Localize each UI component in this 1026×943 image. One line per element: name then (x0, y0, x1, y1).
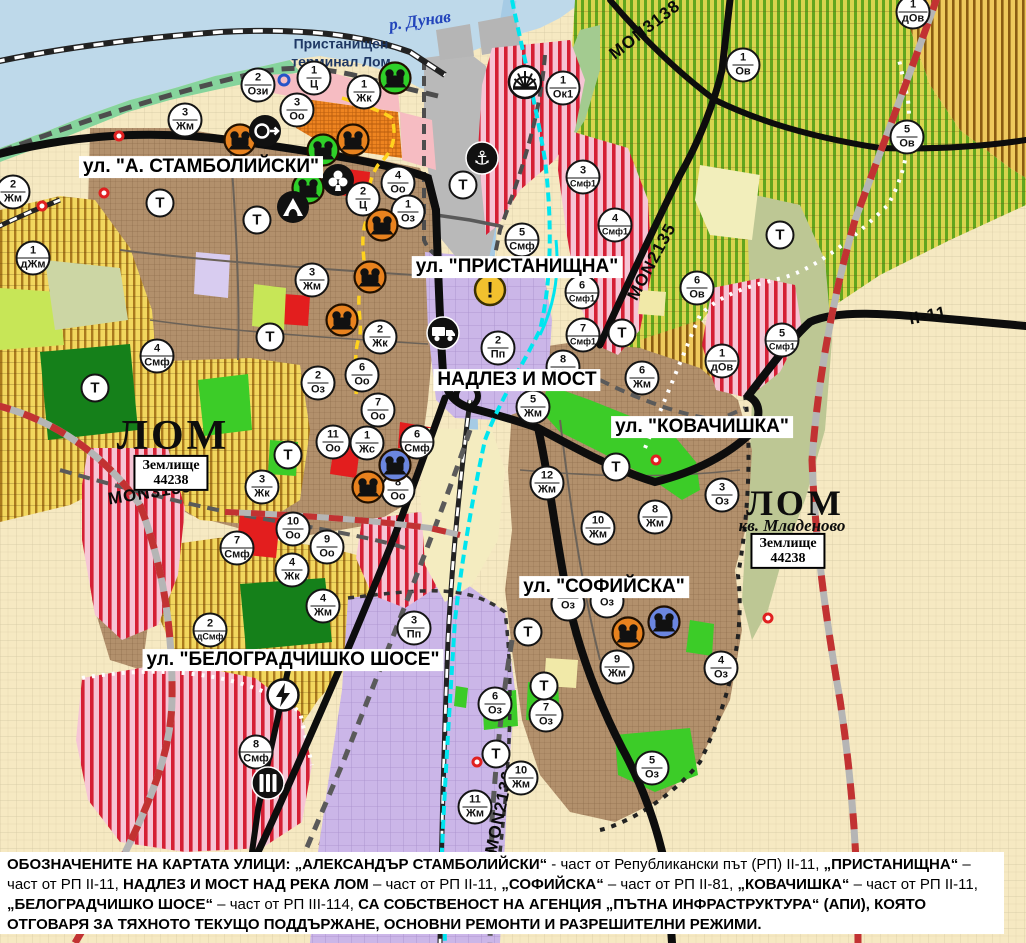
zone-marker-code: Жм (643, 516, 667, 530)
zone-marker-2-Ози: 2Ози (241, 68, 276, 103)
zone-marker-1-Ц: 1Ц (297, 61, 332, 96)
zone-marker-code: дСмф (194, 630, 227, 642)
zone-marker-code: Жм (509, 777, 533, 791)
zone-marker-code: Смф (506, 239, 538, 253)
zone-marker-code: Жм (311, 605, 335, 619)
zone-marker-number: 1 (405, 199, 411, 210)
zone-marker-number: 4 (718, 655, 724, 666)
zone-marker-number: 4 (320, 593, 326, 604)
zone-marker-5-Жм: 5Жм (516, 390, 551, 425)
road-label-mon3138: MON3138 (606, 0, 685, 64)
zone-marker-code: Оо (367, 409, 388, 423)
zone-marker-number: 4 (289, 557, 295, 568)
zone-marker-number: 2 (207, 618, 213, 629)
zone-marker-code: Оз (308, 382, 328, 396)
zone-marker-number: 7 (580, 323, 586, 334)
zone-marker-number: 6 (359, 362, 365, 373)
zone-marker-code: Жк (353, 91, 374, 105)
point-marker (99, 188, 110, 199)
zone-marker-code: Смф (240, 751, 272, 765)
zone-marker-9-Оо: 9Оо (310, 530, 345, 565)
zone-marker-1-дОв: 1дОв (896, 0, 931, 30)
street-label: ул. "КОВАЧИШКА" (611, 416, 793, 438)
station-icon (250, 765, 286, 801)
zone-marker-number: 8 (253, 739, 259, 750)
zone-marker-number: 3 (580, 165, 586, 176)
transport-marker-t: Т (482, 740, 511, 769)
zone-marker-number: 9 (614, 654, 620, 665)
zone-marker-code: дЖм (17, 257, 48, 271)
footer-note: ОБОЗНАЧЕНИТЕ НА КАРТАТА УЛИЦИ: „АЛЕКСАНД… (0, 852, 1004, 934)
zone-marker-number: 1 (364, 430, 370, 441)
zone-marker-7-Смф1: 7Смф1 (566, 318, 601, 353)
zone-marker-3-Жк: 3Жк (245, 470, 280, 505)
zone-marker-6-Оз: 6Оз (478, 687, 513, 722)
zone-marker-2-Оз: 2Оз (301, 366, 336, 401)
zone-marker-number: 1 (30, 245, 36, 256)
port-terminal-line1: Пристанищен (291, 36, 391, 54)
zone-marker-code: Ок1 (550, 87, 576, 101)
zone-marker-2-Пп: 2Пп (481, 331, 516, 366)
zone-marker-code: Оз (642, 767, 662, 781)
zone-marker-code: Жм (521, 406, 545, 420)
zone-marker-5-Ов: 5Ов (890, 120, 925, 155)
svg-text:⚓: ⚓ (473, 148, 490, 170)
zone-marker-9-Жм: 9Жм (600, 650, 635, 685)
zone-marker-code: Ов (686, 287, 707, 301)
zone-marker-code: Жм (630, 377, 654, 391)
zone-marker-12-Жм: 12Жм (530, 466, 565, 501)
transport-marker-t: Т (256, 323, 285, 352)
footer-text-segment: „ПРИСТАНИЩНА“ (824, 856, 959, 873)
zone-marker-number: 6 (694, 275, 700, 286)
zone-marker-8-Жм: 8Жм (638, 500, 673, 535)
street-label: ул. "БЕЛОГРАДЧИШКО ШОСЕ" (143, 649, 444, 671)
club-icon (320, 162, 356, 198)
zone-marker-4-Жк: 4Жк (275, 553, 310, 588)
culture-monument-icon-orange (352, 259, 388, 295)
footer-text-segment: ОБОЗНАЧЕНИТЕ НА КАРТАТА УЛИЦИ: „АЛЕКСАНД… (7, 856, 547, 873)
footer-text-segment: „КОВАЧИШКА“ (737, 876, 849, 893)
anchor-icon: ⚓ (464, 140, 500, 176)
zone-marker-code: Жм (463, 806, 487, 820)
zone-marker-number: 11 (469, 794, 481, 805)
zone-marker-number: 2 (377, 324, 383, 335)
zone-marker-5-Оз: 5Оз (635, 751, 670, 786)
zone-marker-code: Оо (351, 374, 372, 388)
culture-monument-icon-orange (610, 615, 646, 651)
zone-marker-10-Жм: 10Жм (504, 761, 539, 796)
zone-marker-code: Жм (173, 119, 197, 133)
zone-marker-11-Оо: 11Оо (316, 425, 351, 460)
land-plot-box-east: Землище 44238 (750, 533, 825, 569)
zone-marker-number: 4 (612, 213, 618, 224)
point-marker (114, 131, 125, 142)
zone-marker-code: Оз (558, 598, 578, 612)
zone-marker-code: Жк (369, 336, 390, 350)
zone-marker-code: Оз (398, 211, 418, 225)
zone-marker-code: Оо (387, 489, 408, 503)
culture-monument-icon-orange (364, 207, 400, 243)
zone-marker-number: 2 (360, 186, 366, 197)
zone-marker-6-Смф1: 6Смф1 (565, 275, 600, 310)
footer-text-segment: – част от РП II-81, (604, 876, 738, 893)
zone-marker-code: Оо (282, 528, 303, 542)
zone-marker-1-дОв: 1дОв (705, 344, 740, 379)
zone-marker-number: 6 (579, 280, 585, 291)
zone-marker-code: дОв (708, 360, 736, 374)
land-plot-line2: 44238 (142, 473, 199, 488)
zone-marker-1-Ов: 1Ов (726, 48, 761, 83)
zone-marker-1-Ок1: 1Ок1 (546, 71, 581, 106)
zone-marker-code: Ц (307, 77, 321, 91)
land-plot-line1: Землище (759, 536, 816, 551)
zone-marker-code: Оо (316, 546, 337, 560)
zone-marker-code: Смф1 (599, 225, 631, 237)
street-label: ул. "ПРИСТАНИЩНА" (412, 256, 623, 278)
zone-marker-code: Жк (251, 486, 272, 500)
point-marker (37, 201, 48, 212)
zone-marker-7-Оз: 7Оз (529, 698, 564, 733)
road-label-mon2135: MON2135 (623, 220, 680, 304)
point-marker (651, 455, 662, 466)
zone-marker-number: 1 (560, 75, 566, 86)
zone-marker-code: Жм (1, 191, 25, 205)
port-fan-icon (507, 64, 543, 100)
overlay-layer: р. Дунав Пристанищен терминал Лом ЛОМ ЛО… (0, 0, 1026, 943)
zone-marker-6-Ов: 6Ов (680, 271, 715, 306)
zone-marker-4-Смф1: 4Смф1 (598, 208, 633, 243)
zone-marker-number: 5 (904, 124, 910, 135)
zone-marker-number: 3 (294, 97, 300, 108)
zoning-map: р. Дунав Пристанищен терминал Лом ЛОМ ЛО… (0, 0, 1026, 943)
zone-marker-code: Жм (586, 527, 610, 541)
power-icon (265, 677, 301, 713)
footer-text-segment: – част от РП III-114, (213, 896, 358, 913)
zone-marker-number: 8 (560, 354, 566, 365)
zone-marker-code: Пп (404, 627, 425, 641)
zone-marker-code: Жк (281, 569, 302, 583)
land-plot-line2: 44238 (759, 551, 816, 566)
zone-marker-10-Оо: 10Оо (276, 512, 311, 547)
zone-marker-3-Оз: 3Оз (705, 478, 740, 513)
zone-marker-code: Жм (300, 279, 324, 293)
zone-marker-code: Оо (322, 441, 343, 455)
point-marker (472, 757, 483, 768)
zone-marker-number: 3 (411, 615, 417, 626)
ring-marker (278, 74, 291, 87)
zone-marker-code: Жм (535, 482, 559, 496)
zone-marker-3-Смф1: 3Смф1 (566, 160, 601, 195)
zone-marker-number: 7 (543, 702, 549, 713)
zone-marker-number: 10 (592, 515, 604, 526)
zone-marker-code: Оз (536, 714, 556, 728)
zone-marker-number: 9 (324, 534, 330, 545)
zone-marker-4-Жм: 4Жм (306, 589, 341, 624)
zone-marker-5-Смф: 5Смф (505, 223, 540, 258)
zone-marker-6-Оо: 6Оо (345, 358, 380, 393)
zone-marker-code: Ози (245, 84, 272, 98)
zone-marker-code: Оз (712, 494, 732, 508)
tunnel-icon (275, 189, 311, 225)
footer-text-segment: „СОФИЙСКА“ (501, 876, 603, 893)
ring-arrow-icon (247, 113, 283, 149)
street-label: ул. "СОФИЙСКА" (519, 576, 689, 598)
zone-marker-2-Жм: 2Жм (0, 175, 31, 210)
zone-marker-number: 1 (311, 65, 317, 76)
zone-marker-number: 5 (779, 328, 785, 339)
zone-marker-10-Жм: 10Жм (581, 511, 616, 546)
zone-marker-number: 4 (395, 170, 401, 181)
zone-marker-11-Жм: 11Жм (458, 790, 493, 825)
footer-text-segment: НАДЛЕЗ И МОСТ НАД РЕКА ЛОМ (123, 876, 369, 893)
transport-marker-t: Т (514, 618, 543, 647)
zone-marker-number: 1 (740, 52, 746, 63)
zone-marker-number: 6 (639, 365, 645, 376)
zone-marker-number: 1 (361, 79, 367, 90)
zone-marker-5-Смф1: 5Смф1 (765, 323, 800, 358)
culture-monument-icon-green (377, 60, 413, 96)
zone-marker-number: 7 (375, 397, 381, 408)
street-label: ул. "А. СТАМБОЛИЙСКИ" (79, 156, 323, 178)
zone-marker-number: 10 (515, 765, 527, 776)
zone-marker-7-Смф: 7Смф (220, 531, 255, 566)
transport-marker-t: Т (602, 453, 631, 482)
river-label: р. Дунав (388, 7, 452, 35)
zone-marker-4-Смф: 4Смф (140, 339, 175, 374)
zone-marker-number: 5 (649, 755, 655, 766)
zone-marker-number: 2 (495, 335, 501, 346)
zone-marker-number: 7 (234, 535, 240, 546)
zone-marker-number: 3 (719, 482, 725, 493)
transport-marker-t: Т (81, 374, 110, 403)
svg-text:!: ! (486, 278, 493, 303)
zone-marker-number: 4 (154, 343, 160, 354)
culture-monument-icon-orange (324, 302, 360, 338)
zone-marker-number: 3 (309, 267, 315, 278)
culture-monument-icon-orange (335, 122, 371, 158)
zone-marker-4-Оз: 4Оз (704, 651, 739, 686)
zone-marker-code: Ов (896, 136, 917, 150)
zone-marker-number: 1 (719, 348, 725, 359)
zone-marker-code: Смф (141, 355, 173, 369)
point-marker (763, 613, 774, 624)
zone-marker-code: Смф1 (567, 177, 599, 189)
zone-marker-number: 2 (255, 72, 261, 83)
zone-marker-code: Смф1 (567, 335, 599, 347)
transport-marker-t: Т (766, 221, 795, 250)
zone-marker-number: 12 (541, 470, 553, 481)
zone-marker-3-Оо: 3Оо (280, 93, 315, 128)
transport-marker-t: Т (530, 672, 559, 701)
footer-text-segment: – част от РП II-11, (849, 876, 977, 893)
zone-marker-3-Пп: 3Пп (397, 611, 432, 646)
transport-marker-t: Т (146, 189, 175, 218)
zone-marker-code: Оз (711, 667, 731, 681)
zone-marker-number: 8 (652, 504, 658, 515)
transport-marker-t: Т (274, 441, 303, 470)
transport-marker-t: Т (608, 319, 637, 348)
zone-marker-number: 2 (10, 179, 16, 190)
zone-marker-number: 3 (182, 107, 188, 118)
culture-monument-icon-blue (377, 447, 413, 483)
zone-marker-code: Оо (286, 109, 307, 123)
zone-marker-number: 5 (519, 227, 525, 238)
zone-marker-number: 10 (287, 516, 299, 527)
zone-marker-number: 11 (327, 429, 339, 440)
truck-icon (425, 315, 461, 351)
zone-marker-number: 2 (315, 370, 321, 381)
zone-marker-3-Жм: 3Жм (295, 263, 330, 298)
city-label-lom-west: ЛОМ (117, 412, 230, 460)
culture-monument-icon-blue (646, 604, 682, 640)
footer-text-segment: „БЕЛОГРАДЧИШКО ШОСЕ“ (7, 896, 213, 913)
zone-marker-2-Жк: 2Жк (363, 320, 398, 355)
zone-marker-number: 6 (492, 691, 498, 702)
transport-marker-t: Т (243, 206, 272, 235)
road-label-ii-11: II-11 (907, 303, 948, 330)
land-plot-box-west: Землище 44238 (133, 455, 208, 491)
zone-marker-code: Смф1 (566, 292, 598, 304)
zone-marker-number: 1 (910, 0, 916, 10)
zone-marker-code: дОв (899, 11, 927, 25)
zone-marker-code: Смф (221, 547, 253, 561)
zone-marker-number: 6 (414, 429, 420, 440)
zone-marker-code: Пп (488, 347, 509, 361)
zone-marker-2-дСмф: 2дСмф (193, 613, 228, 648)
street-label: НАДЛЕЗ И МОСТ (433, 369, 600, 391)
zone-marker-3-Жм: 3Жм (168, 103, 203, 138)
land-plot-line1: Землище (142, 458, 199, 473)
footer-text-segment: – част от РП II-11, (369, 876, 502, 893)
zone-marker-code: Жс (356, 442, 378, 456)
zone-marker-number: 3 (259, 474, 265, 485)
zone-marker-code: Оз (485, 703, 505, 717)
zone-marker-code: Жм (605, 666, 629, 680)
zone-marker-1-дЖм: 1дЖм (16, 241, 51, 276)
zone-marker-code: Ов (732, 64, 753, 78)
zone-marker-code: Смф1 (766, 340, 798, 352)
zone-marker-number: 5 (530, 394, 536, 405)
zone-marker-6-Жм: 6Жм (625, 361, 660, 396)
footer-text-segment: - част от Републикански път (РП) II-11, (547, 856, 823, 873)
zone-marker-7-Оо: 7Оо (361, 393, 396, 428)
